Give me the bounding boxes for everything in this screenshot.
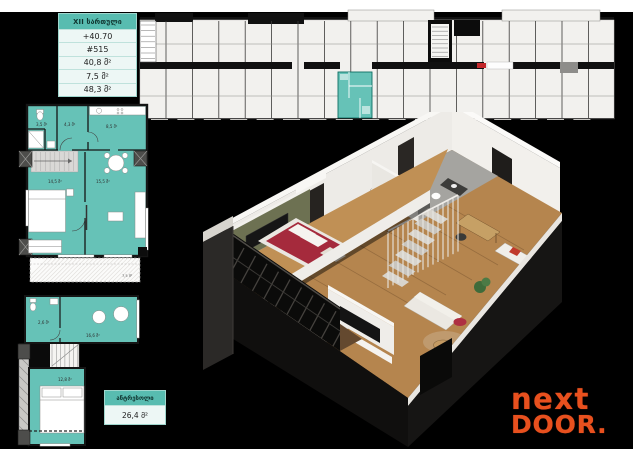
plant (482, 278, 491, 287)
pouf (114, 307, 129, 322)
dining-table (108, 155, 124, 171)
mezzanine-title: ანტრესოლი (105, 391, 165, 405)
balcony-label: 7,5 მ² (122, 274, 133, 278)
coffee-table (108, 212, 123, 221)
nightstand (67, 189, 74, 196)
pillow (42, 388, 61, 397)
shaft-block (560, 62, 578, 73)
room-label-mezz-bedroom: 12,8 მ² (58, 377, 72, 382)
corridor-wall (372, 62, 484, 69)
apartment-info-box: XII სართული +40.70 #515 40,8 მ² 7,5 მ² 4… (58, 13, 137, 97)
mezzanine-info-box: ანტრესოლი 26,4 მ² (104, 390, 166, 425)
corridor-wall (304, 62, 340, 69)
mezzanine-floor-plan: 2,6 მ² 16,6 მ² 12,8 მ² (13, 292, 173, 453)
chair (104, 168, 110, 174)
wall-block (138, 247, 147, 256)
building-key-plan (137, 6, 617, 120)
keyplan-notch (348, 10, 434, 21)
corridor-wall (496, 62, 614, 69)
room-label-mezz-hall: 16,6 მ² (86, 333, 100, 338)
balcony-hatch (137, 258, 158, 282)
toilet (37, 112, 43, 120)
room-label-bedroom: 14,5 მ² (48, 179, 62, 184)
washbasin (50, 299, 58, 305)
toilet (30, 303, 36, 311)
red-marker (477, 63, 486, 68)
desk-chair (456, 233, 467, 241)
stair-void (29, 343, 50, 368)
total-area: 48,3 მ² (59, 83, 136, 96)
interior-area: 40,8 მ² (59, 56, 136, 69)
elevation-value: +40.70 (59, 29, 136, 42)
chair (122, 168, 128, 174)
keyplan-notch (502, 10, 600, 21)
room-label-hall: 4,3 მ² (64, 122, 76, 127)
stair-core (431, 24, 449, 58)
unit-fixture (340, 74, 348, 80)
core-block (454, 20, 480, 36)
pillow (63, 388, 82, 397)
logo-line-next: next (511, 386, 619, 413)
toilet (432, 193, 441, 199)
pouf (93, 311, 106, 324)
nextdoor-logo: next DOOR. (511, 386, 619, 436)
window (137, 300, 140, 338)
logo-line-door: DOOR. (511, 413, 619, 436)
room-label-living: 15,5 მ² (96, 179, 110, 184)
corridor-wall (140, 62, 292, 69)
left-outer-wall (203, 216, 233, 370)
bed (29, 190, 66, 232)
chair (104, 153, 110, 159)
sofa (135, 192, 146, 238)
floor-label: XII სართული (59, 14, 136, 29)
floorplan-sheet: XII სართული +40.70 #515 40,8 მ² 7,5 მ² 4… (0, 0, 640, 453)
red-pouf (454, 318, 467, 326)
room-label-mezz-bath: 2,6 მ² (38, 320, 50, 325)
mezzanine-area: 26,4 მ² (105, 405, 165, 424)
chair (122, 153, 128, 159)
washbasin (47, 141, 55, 148)
marker-tag (487, 62, 513, 69)
outer-wall-face (203, 226, 233, 370)
main-floor-plan: 3,5 მ² 4,3 მ² 8,5 მ² 14,5 მ² 15,5 მ² 7,5… (13, 100, 158, 290)
keyplan-core-block (155, 13, 193, 22)
room-label-kitchen: 8,5 მ² (106, 124, 118, 129)
keyplan-core-block (248, 13, 304, 24)
apartment-number: #515 (59, 42, 136, 55)
room-label-bathroom: 3,5 მ² (36, 122, 48, 127)
window (40, 444, 70, 447)
balcony-area: 7,5 მ² (59, 69, 136, 82)
toilet-tank (30, 299, 36, 303)
apartment-fill (27, 105, 147, 256)
sink (451, 184, 457, 188)
balcony (30, 258, 140, 282)
